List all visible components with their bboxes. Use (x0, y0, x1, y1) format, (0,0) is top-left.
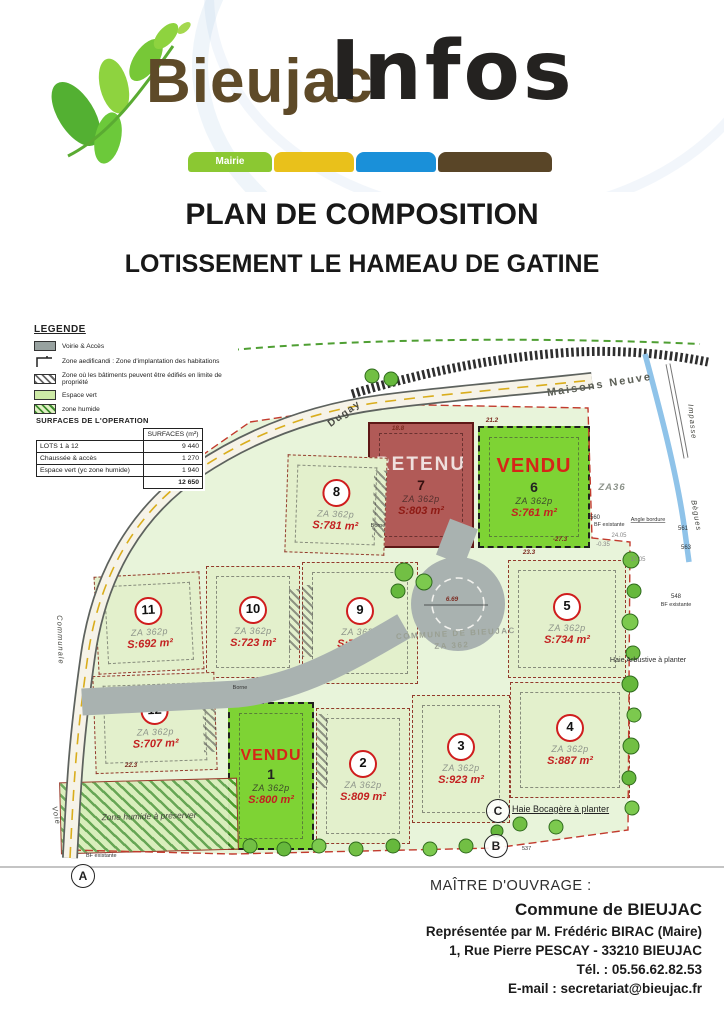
surfaces-total: 12 650 (144, 477, 203, 489)
lot-2: 2 ZA 362p S:809 m² (316, 708, 410, 844)
lot-area: S:707 m² (133, 737, 179, 751)
za36-label: ZA36 (597, 482, 625, 493)
legend-item: Zone aedificandi : Zone d'implantation d… (34, 355, 234, 368)
haie-bocagere-label: Haie Bocagère à planter (512, 804, 609, 814)
lot-1-vendu: VENDU 1 ZA 362p S:800 m² (228, 702, 314, 850)
lot-area: S:692 m² (127, 636, 173, 650)
marker-b: B (484, 834, 508, 858)
top-green-line (232, 340, 700, 350)
lot-4: 4 ZA 362p S:887 m² (510, 682, 630, 798)
page-subtitle: LOTISSEMENT LE HAMEAU DE GATINE (0, 250, 724, 279)
lot-parcel-ref: ZA 362p (548, 623, 585, 633)
point-number: 561 (678, 526, 689, 532)
lot-area: S:734 m² (544, 634, 590, 646)
lot-12: 12 ZA 362p S:707 m² (92, 672, 217, 774)
ribbon-bar (438, 152, 552, 172)
legend-item: Espace vert (34, 390, 234, 400)
lot-parcel-ref: ZA 362p (551, 744, 588, 754)
legend-item: Zone où les bâtiments peuvent être édifi… (34, 372, 234, 386)
lot-area: S:803 m² (398, 505, 444, 517)
marker-a: A (71, 864, 95, 888)
lot-parcel-ref: ZA 362p (344, 780, 381, 790)
marker-b-number: 537 (522, 846, 531, 852)
lot-10: 10 ZA 362p S:723 m² (206, 566, 300, 678)
lot-area: S:781 m² (312, 519, 358, 533)
bf-existante-label: BF existante (594, 522, 625, 528)
lot-11: 11 ZA 362p S:692 m² (94, 571, 205, 674)
lot-status: VENDU (240, 747, 301, 765)
limit-hatch (372, 470, 387, 538)
street-label-communale: Communale (55, 615, 66, 665)
brand-secondary: Infos (330, 24, 575, 119)
limit-hatch (289, 589, 300, 650)
lot-5: 5 ZA 362p S:734 m² (508, 560, 626, 678)
street-label-begues: Bègues (689, 499, 703, 532)
surfaces-table: SURFACES DE L'OPERATION SURFACES (m²) LO… (34, 414, 205, 491)
owner-line: Représentée par M. Frédéric BIRAC (Maire… (426, 922, 702, 941)
hatch-gray-swatch-icon (34, 374, 56, 384)
legend-item: Voirie & Accès (34, 341, 234, 351)
dim-label: 24.05 (611, 533, 627, 539)
lot-number-badge: 8 (322, 478, 351, 507)
owner-block: Commune de BIEUJAC Représentée par M. Fr… (426, 900, 702, 999)
surfaces-title: SURFACES DE L'OPERATION (36, 416, 203, 425)
maitre-douvrage-label: MAÎTRE D'OUVRAGE : (430, 878, 592, 894)
legend-item: zone humide (34, 404, 234, 414)
lot-area: S:809 m² (340, 791, 386, 803)
legend-title: LEGENDE (34, 324, 234, 335)
owner-line: 1, Rue Pierre PESCAY - 33210 BIEUJAC (426, 941, 702, 960)
point-number: 548 (671, 594, 682, 600)
lot-parcel-ref: ZA 362p (234, 626, 271, 636)
dim-label: 17.05 (630, 557, 646, 563)
table-total-row: 12 650 (37, 477, 203, 489)
lot-number: 6 (530, 479, 538, 495)
table-row: Espace vert (yc zone humide) 1 940 (37, 465, 203, 477)
header: Bieujac Infos Mairie (0, 0, 724, 192)
zone-aedificandi-icon (34, 355, 56, 368)
lot-parcel-ref: ZA 362p (402, 494, 439, 504)
lot-number-badge: 5 (553, 593, 581, 621)
footer-separator (0, 866, 724, 868)
lot-number-badge: 10 (239, 596, 267, 624)
page-title: PLAN DE COMPOSITION (0, 198, 724, 232)
lot-area: S:800 m² (248, 794, 294, 806)
lot-number-badge: 4 (556, 714, 584, 742)
espace-vert-swatch-icon (34, 390, 56, 400)
lot-number-badge: 11 (134, 596, 163, 625)
lot-number: 1 (267, 766, 275, 782)
lot-parcel-ref: ZA 362p (317, 508, 355, 519)
begues-stream (645, 354, 689, 562)
table-row: LOTS 1 à 12 9 440 (37, 441, 203, 453)
lot-area: S:709 m² (337, 638, 383, 650)
composition-plan: RETENU 7 ZA 362p S:803 m² VENDU 6 ZA 362… (0, 310, 724, 890)
lot-area: S:761 m² (511, 507, 557, 519)
lot-status: VENDU (496, 455, 571, 478)
lot-number-badge: 2 (349, 750, 377, 778)
point-number: 560 (590, 515, 601, 521)
col-header: SURFACES (m²) (144, 429, 203, 441)
street-label-impasse: Impasse (686, 404, 699, 440)
lot-number-badge: 9 (346, 597, 374, 625)
limit-hatch (202, 684, 217, 752)
lot-parcel-ref: ZA 362p (442, 763, 479, 773)
lot-9: 9 ZA 362p S:709 m² (302, 562, 418, 684)
point-number: 563 (681, 545, 692, 551)
limit-hatch (316, 714, 328, 788)
lot-parcel-ref: ZA 362p (137, 726, 175, 737)
lot-6-vendu: VENDU 6 ZA 362p S:761 m² (478, 426, 590, 548)
owner-name: Commune de BIEUJAC (426, 900, 702, 920)
owner-line: E-mail : secretariat@bieujac.fr (426, 979, 702, 998)
marker-c: C (486, 799, 510, 823)
lot-number-badge: 3 (447, 733, 475, 761)
street-label-maisons-neuve: Maisons Neuve (546, 371, 653, 399)
table-row: Chaussée & accès 1 270 (37, 453, 203, 465)
lot-number-badge: 12 (140, 696, 169, 725)
existing-road-hatch (352, 351, 708, 394)
lot-parcel-ref: ZA 362p (341, 627, 378, 637)
zone-humide-area: Zone humide à préserver (59, 778, 239, 855)
newsletter-page: Bieujac Infos Mairie PLAN DE COMPOSITION… (0, 0, 724, 1024)
lot-area: S:887 m² (547, 755, 593, 767)
lot-area: S:723 m² (230, 637, 276, 649)
lot-8: 8 ZA 362p S:781 m² (284, 454, 387, 555)
legend: LEGENDE Voirie & Accès Zone aedificandi … (30, 322, 238, 420)
ribbon-bar-mairie: Mairie (188, 152, 272, 172)
ribbon-bar (274, 152, 354, 172)
bf-existante-label: BF existante (661, 602, 692, 608)
table-header-row: SURFACES (m²) (37, 429, 203, 441)
brand-ribbon: Mairie (188, 152, 552, 172)
ribbon-bar (356, 152, 436, 172)
bf-existante-label: BF existante (86, 853, 117, 859)
owner-line: Tél. : 05.56.62.82.53 (426, 960, 702, 979)
limit-hatch (302, 585, 313, 657)
lot-parcel-ref: ZA 362p (515, 496, 552, 506)
road-swatch-icon (34, 341, 56, 351)
angle-bordure-label: Angle bordure (631, 517, 666, 523)
lot-parcel-ref: ZA 362p (131, 626, 169, 638)
lot-status: RETENU (376, 454, 466, 476)
zone-humide-swatch-icon (34, 404, 56, 414)
lot-area: S:923 m² (438, 774, 484, 786)
zone-humide-label: Zone humide à préserver (101, 810, 196, 822)
lot-number: 7 (417, 477, 425, 493)
lot-parcel-ref: ZA 362p (252, 783, 289, 793)
